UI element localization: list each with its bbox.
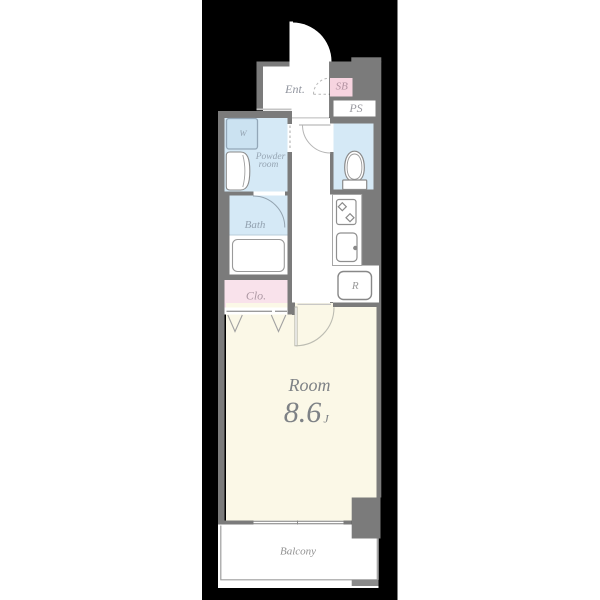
svg-text:Bath: Bath xyxy=(245,219,266,231)
svg-text:PS: PS xyxy=(348,101,362,115)
svg-text:R: R xyxy=(351,280,359,292)
svg-text:room: room xyxy=(259,160,279,170)
svg-text:Clo.: Clo. xyxy=(246,289,266,303)
svg-text:W: W xyxy=(239,128,247,138)
svg-text:J: J xyxy=(323,412,329,426)
svg-text:8.6: 8.6 xyxy=(284,396,322,429)
svg-text:Room: Room xyxy=(288,375,331,395)
svg-text:Ent.: Ent. xyxy=(284,82,305,96)
svg-text:Balcony: Balcony xyxy=(280,546,316,558)
svg-text:SB: SB xyxy=(336,81,349,93)
